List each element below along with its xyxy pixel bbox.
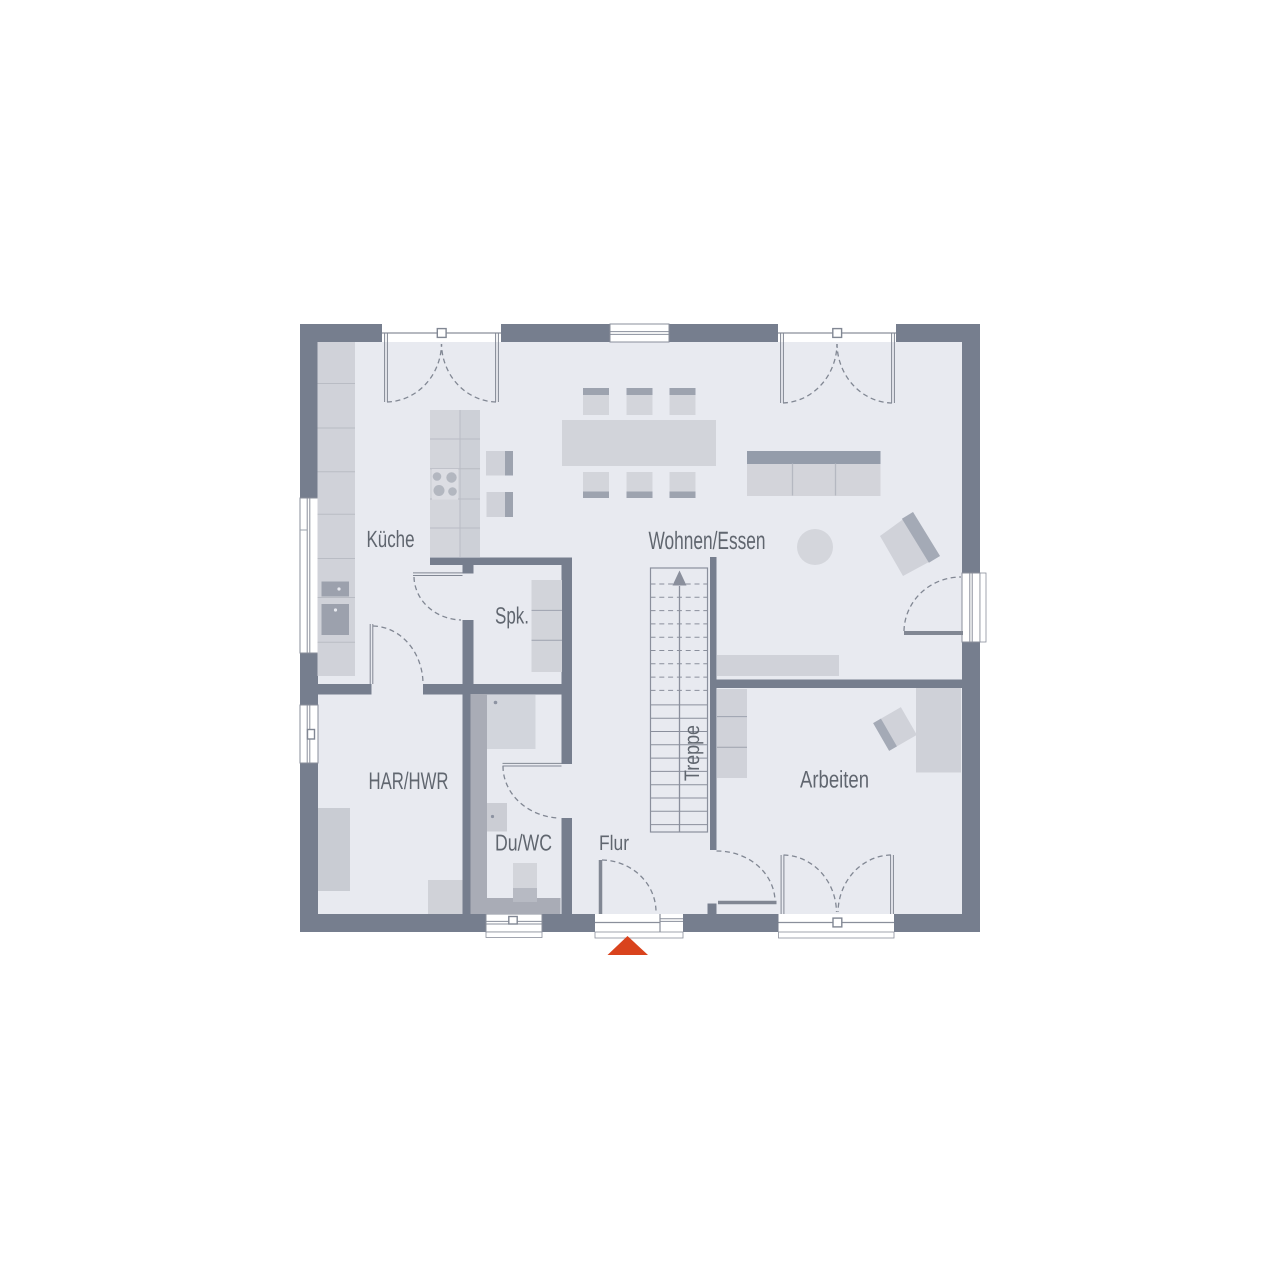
svg-text:Du/WC: Du/WC xyxy=(495,830,552,856)
svg-text:Wohnen/Essen: Wohnen/Essen xyxy=(649,527,766,555)
svg-text:Arbeiten: Arbeiten xyxy=(800,767,869,794)
svg-text:HAR/HWR: HAR/HWR xyxy=(369,768,449,795)
svg-text:Küche: Küche xyxy=(367,526,415,552)
svg-text:Spk.: Spk. xyxy=(495,603,529,629)
svg-text:Treppe: Treppe xyxy=(681,725,704,781)
svg-text:Flur: Flur xyxy=(599,832,629,855)
